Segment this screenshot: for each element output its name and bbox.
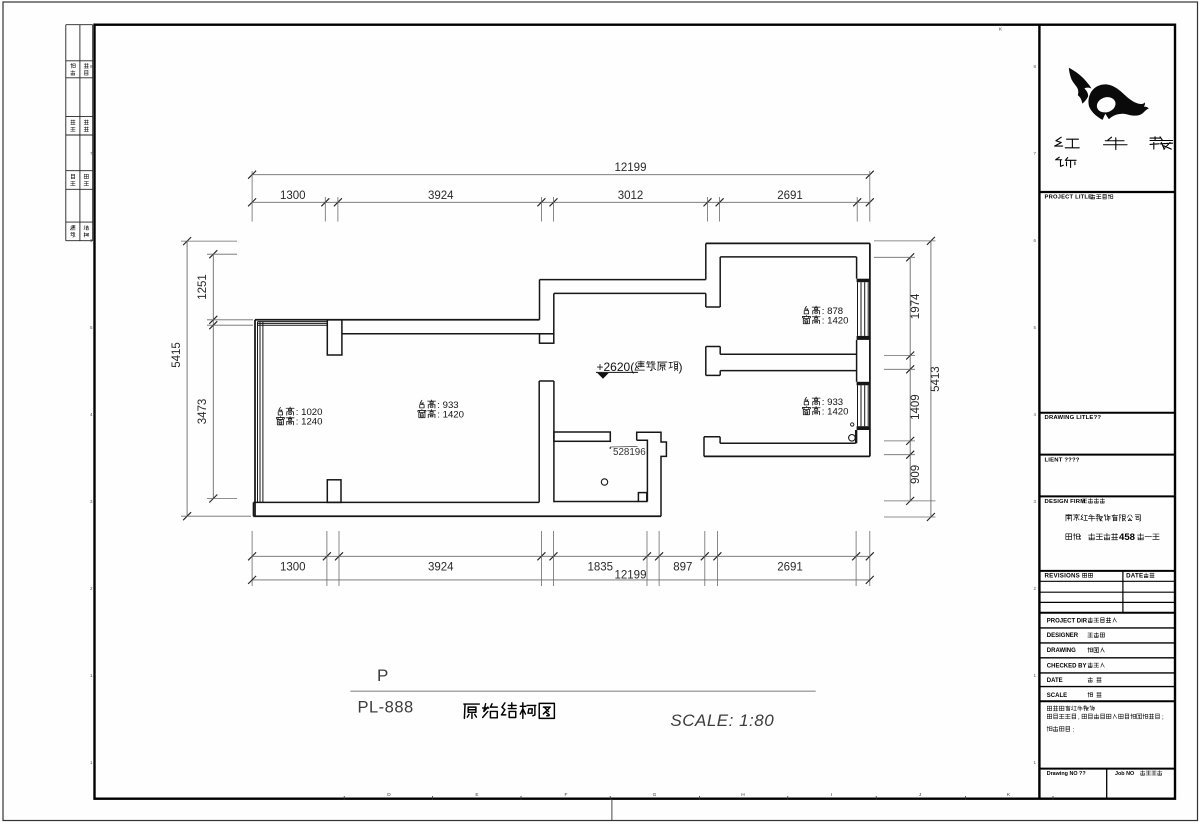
svg-text:E: E	[475, 792, 478, 798]
svg-text:DESIGNER: DESIGNER	[1047, 633, 1079, 639]
svg-text:Drawing NO ??: Drawing NO ??	[1047, 771, 1086, 777]
svg-text:SCALE: SCALE	[1047, 693, 1067, 699]
svg-text:F: F	[565, 792, 568, 798]
svg-text:DATE: DATE	[1126, 572, 1143, 579]
svg-text:1300: 1300	[280, 190, 306, 202]
svg-text:H: H	[741, 792, 745, 798]
svg-text:1251: 1251	[197, 274, 209, 300]
svg-text:12199: 12199	[615, 570, 647, 582]
svg-text:2691: 2691	[777, 190, 803, 202]
svg-text:P: P	[377, 666, 388, 685]
svg-text:5413: 5413	[930, 366, 942, 392]
svg-text:3924: 3924	[428, 190, 454, 202]
svg-text:DATE: DATE	[1047, 678, 1063, 684]
svg-text:5415: 5415	[171, 342, 183, 368]
svg-text:458: 458	[1119, 532, 1136, 543]
svg-text:I: I	[831, 792, 832, 798]
svg-text:: 1420: : 1420	[437, 410, 464, 421]
svg-text:PROJECT LITLE: PROJECT LITLE	[1045, 195, 1093, 201]
svg-text:DESIGN FIRM: DESIGN FIRM	[1045, 499, 1086, 505]
svg-text:909: 909	[910, 465, 922, 484]
svg-text:3473: 3473	[197, 399, 209, 425]
svg-text:): )	[679, 360, 683, 374]
svg-text::: :	[1079, 532, 1082, 541]
svg-text:G: G	[653, 792, 657, 798]
svg-text:1300: 1300	[280, 562, 306, 574]
svg-text:3924: 3924	[428, 562, 454, 574]
svg-text:D: D	[387, 792, 391, 798]
svg-text:1409: 1409	[910, 394, 922, 420]
svg-text:897: 897	[673, 562, 692, 574]
svg-text:REVISIONS: REVISIONS	[1045, 572, 1081, 579]
svg-text:SCALE: 1:80: SCALE: 1:80	[670, 711, 774, 730]
svg-text:12199: 12199	[615, 162, 647, 174]
svg-text:3012: 3012	[618, 190, 644, 202]
svg-text:: 1420: : 1420	[822, 407, 849, 418]
svg-text:1974: 1974	[910, 293, 922, 319]
svg-text:DRAWING: DRAWING	[1047, 648, 1076, 654]
svg-text:PL-888: PL-888	[358, 699, 414, 717]
svg-text:PROJECT DIR: PROJECT DIR	[1047, 618, 1088, 624]
svg-text:: 1420: : 1420	[822, 316, 849, 327]
svg-text:528196: 528196	[613, 447, 646, 458]
svg-text:CHECKED BY: CHECKED BY	[1047, 663, 1087, 669]
svg-text:2691: 2691	[777, 562, 803, 574]
svg-text:: 1240: : 1240	[296, 417, 323, 428]
svg-text:1835: 1835	[588, 562, 614, 574]
svg-text:Job NO: Job NO	[1115, 771, 1134, 777]
svg-text:DRAWING LITLE??: DRAWING LITLE??	[1045, 415, 1102, 421]
svg-text:LIENT ????: LIENT ????	[1045, 457, 1080, 463]
